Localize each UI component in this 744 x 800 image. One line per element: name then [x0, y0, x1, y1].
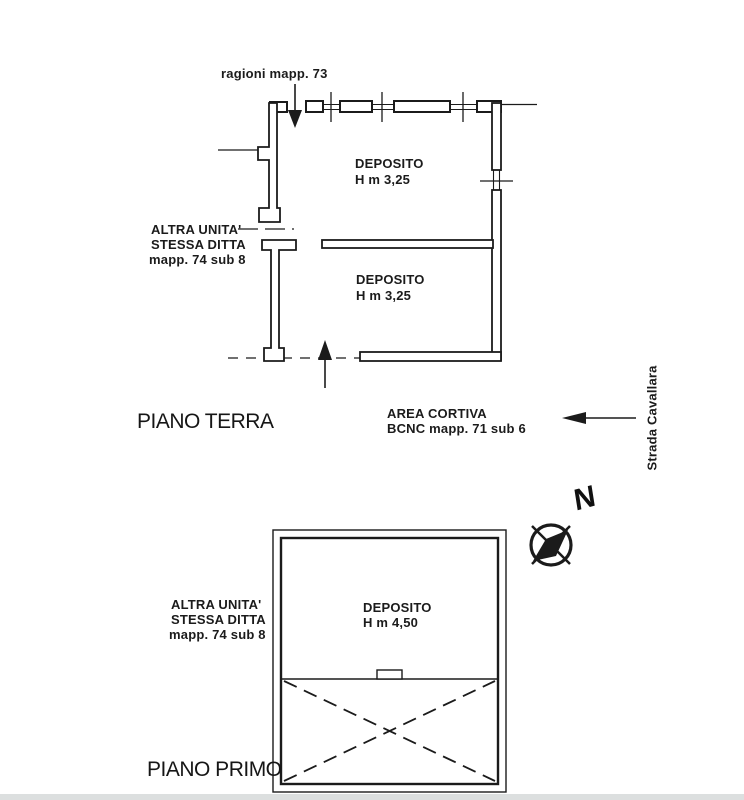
- roof-cross-dashed: [284, 681, 495, 781]
- bottom-wall: [360, 352, 501, 361]
- top-wall-windows: [306, 101, 501, 112]
- entrance-arrow-bottom: [318, 340, 332, 388]
- right-wall-lower: [492, 190, 501, 360]
- footer-bar: [0, 794, 744, 800]
- street-direction-arrow: [562, 412, 636, 424]
- ground-floor-title: PIANO TERRA: [137, 410, 273, 434]
- room-name: DEPOSITO: [355, 156, 424, 171]
- divider-wall: [322, 240, 493, 248]
- left-wall-upper: [258, 103, 280, 222]
- ground-floor-walls: [258, 92, 501, 361]
- room-name: DEPOSITO: [356, 272, 425, 287]
- floor-plan-drawing: [0, 0, 744, 800]
- ground-floor-boundary-dashes: [218, 105, 537, 359]
- first-floor-walls: [273, 530, 506, 792]
- entrance-arrow-top: [288, 84, 302, 128]
- compass-rose: [531, 525, 571, 565]
- first-floor-wall-niche: [377, 670, 402, 679]
- first-floor-title: PIANO PRIMO: [147, 758, 282, 782]
- street-name-label: Strada Cavallara: [645, 369, 660, 471]
- room-height: H m 3,25: [356, 288, 411, 303]
- boundary-label: ragioni mapp. 73: [221, 66, 328, 81]
- right-wall-upper: [492, 103, 501, 170]
- room-name: DEPOSITO: [363, 600, 432, 615]
- left-wall-lower: [262, 240, 296, 361]
- floor-plan-page: ragioni mapp. 73 DEPOSITO H m 3,25 DEPOS…: [0, 0, 744, 800]
- room-height: H m 3,25: [355, 172, 410, 187]
- room-height: H m 4,50: [363, 615, 418, 630]
